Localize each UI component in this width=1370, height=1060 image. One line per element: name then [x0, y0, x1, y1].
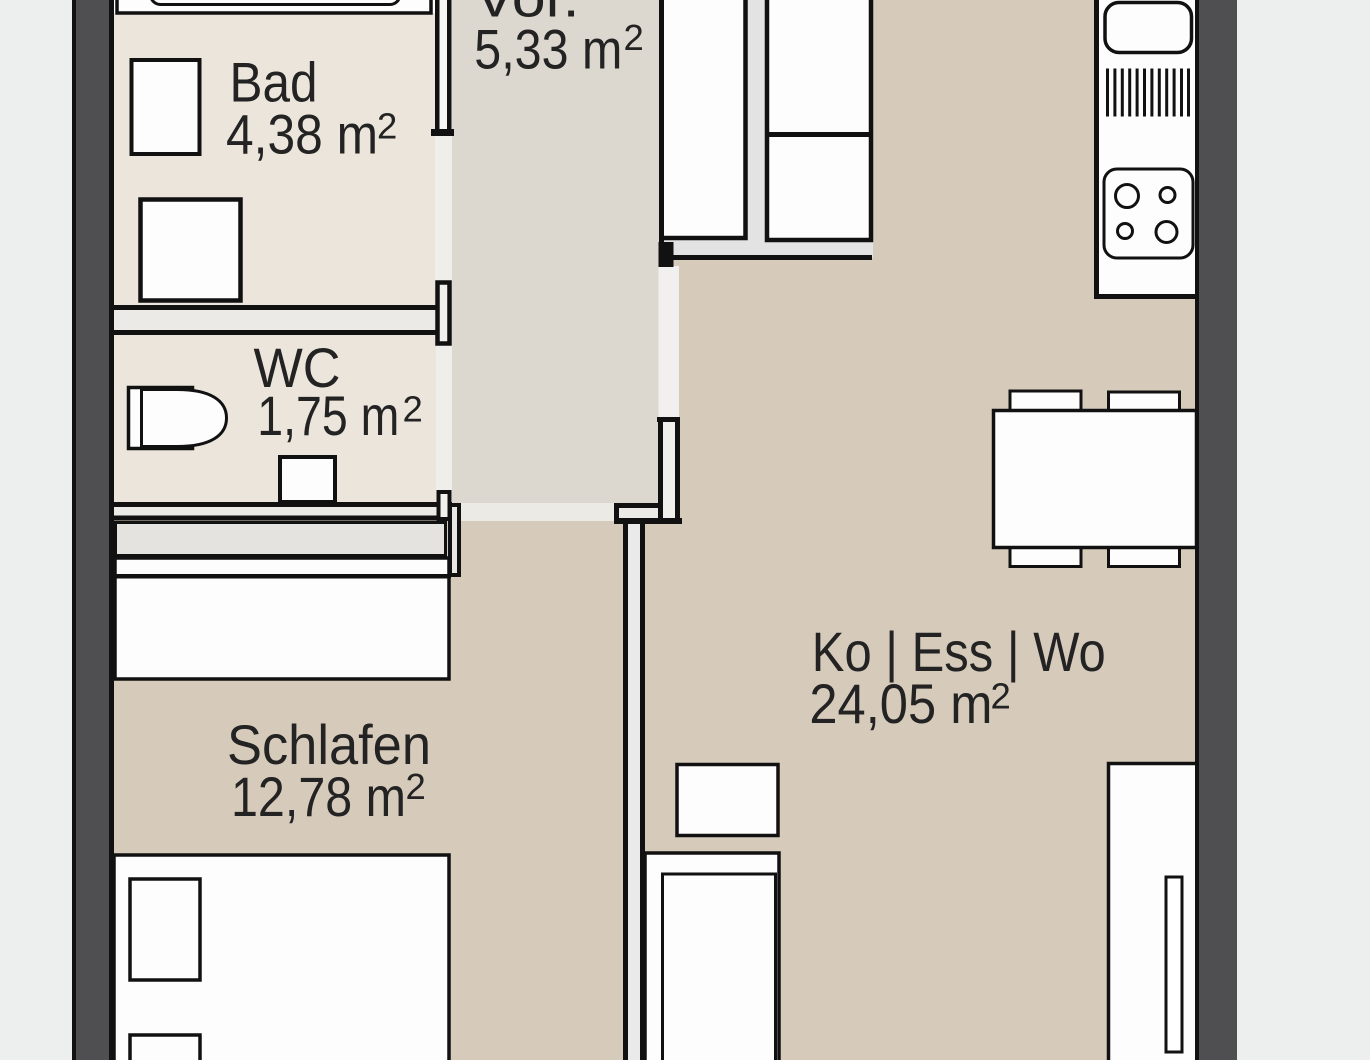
svg-text:5,33 m: 5,33 m [474, 17, 622, 80]
svg-text:24,05 m: 24,05 m [809, 672, 992, 735]
svg-text:4,38 m: 4,38 m [226, 102, 378, 165]
svg-text:2: 2 [624, 17, 644, 58]
svg-text:2: 2 [991, 676, 1011, 717]
svg-text:1,75 m: 1,75 m [257, 384, 399, 447]
svg-text:2: 2 [403, 389, 423, 430]
svg-text:2: 2 [377, 106, 397, 147]
svg-text:12,78 m: 12,78 m [231, 765, 406, 828]
svg-text:2: 2 [406, 766, 426, 807]
